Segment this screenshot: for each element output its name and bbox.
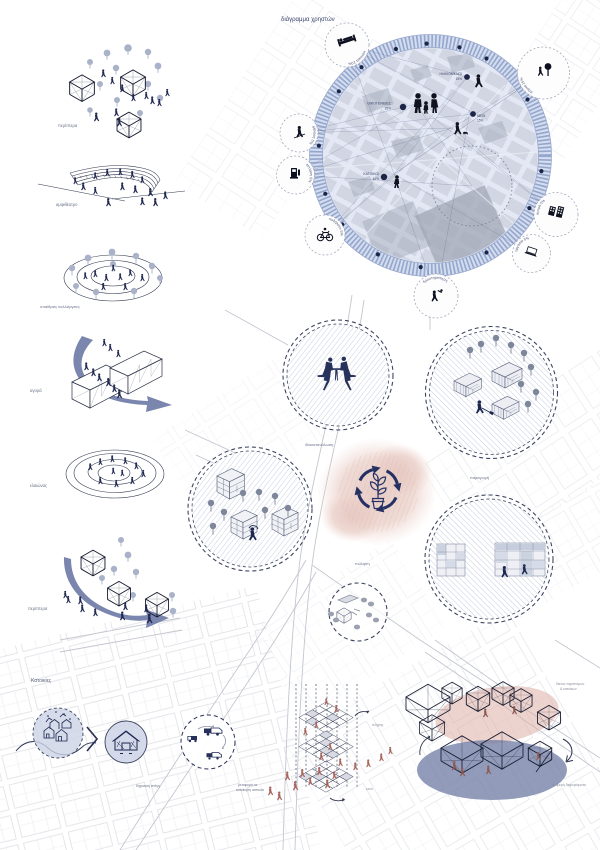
svg-text:υπαίθριες καλλιέργειες: υπαίθριες καλλιέργειες bbox=[40, 304, 80, 309]
svg-text:περίπτερα: περίπτερα bbox=[58, 123, 78, 128]
svg-text:15%: 15% bbox=[456, 77, 463, 81]
svg-text:δημοτική στέγη: δημοτική στέγη bbox=[136, 784, 160, 788]
svg-text:παραγωγή: παραγωγή bbox=[470, 475, 489, 480]
svg-text:& κατοίκων: & κατοίκων bbox=[560, 687, 577, 691]
svg-text:ιδιοκατανάλωση: ιδιοκατανάλωση bbox=[305, 442, 333, 447]
svg-text:δίκτυο περιπτέρων: δίκτυο περιπτέρων bbox=[556, 682, 585, 686]
svg-text:40%: 40% bbox=[373, 177, 380, 181]
svg-text:διάγραμμα χρηστών: διάγραμμα χρηστών bbox=[281, 16, 335, 23]
svg-text:15%: 15% bbox=[477, 119, 484, 123]
svg-text:μεταφορά σε: μεταφορά σε bbox=[238, 783, 258, 787]
svg-text:κατοίκηση αστικών: κατοίκηση αστικών bbox=[236, 788, 264, 792]
svg-text:ΚΑΤΟΙΚΟΙ: ΚΑΤΟΙΚΟΙ bbox=[363, 172, 379, 176]
svg-text:πλήρης: πλήρης bbox=[372, 723, 384, 727]
svg-text:25%: 25% bbox=[385, 107, 392, 111]
svg-text:αγορά: αγορά bbox=[30, 388, 42, 393]
svg-text:ΝΕΟΙ: ΝΕΟΙ bbox=[477, 114, 485, 118]
svg-text:κενό: κενό bbox=[366, 787, 373, 791]
svg-text:6 διμερή διαμερίσματα: 6 διμερή διαμερίσματα bbox=[552, 783, 586, 787]
svg-text:περίπτερα: περίπτερα bbox=[28, 606, 48, 611]
svg-text:ελαιώνας: ελαιώνας bbox=[30, 483, 47, 488]
svg-text:ΗΛΙΚΙΩΜΕΝΟΙ: ΗΛΙΚΙΩΜΕΝΟΙ bbox=[439, 72, 462, 76]
svg-text:Κατοικίες: Κατοικίες bbox=[31, 678, 52, 684]
svg-text:πώληση: πώληση bbox=[355, 561, 370, 566]
svg-text:ΟΙΚΟΓΕΝΕΙΕΣ: ΟΙΚΟΓΕΝΕΙΕΣ bbox=[367, 102, 392, 106]
svg-text:αμφιθέατρο: αμφιθέατρο bbox=[56, 202, 78, 207]
